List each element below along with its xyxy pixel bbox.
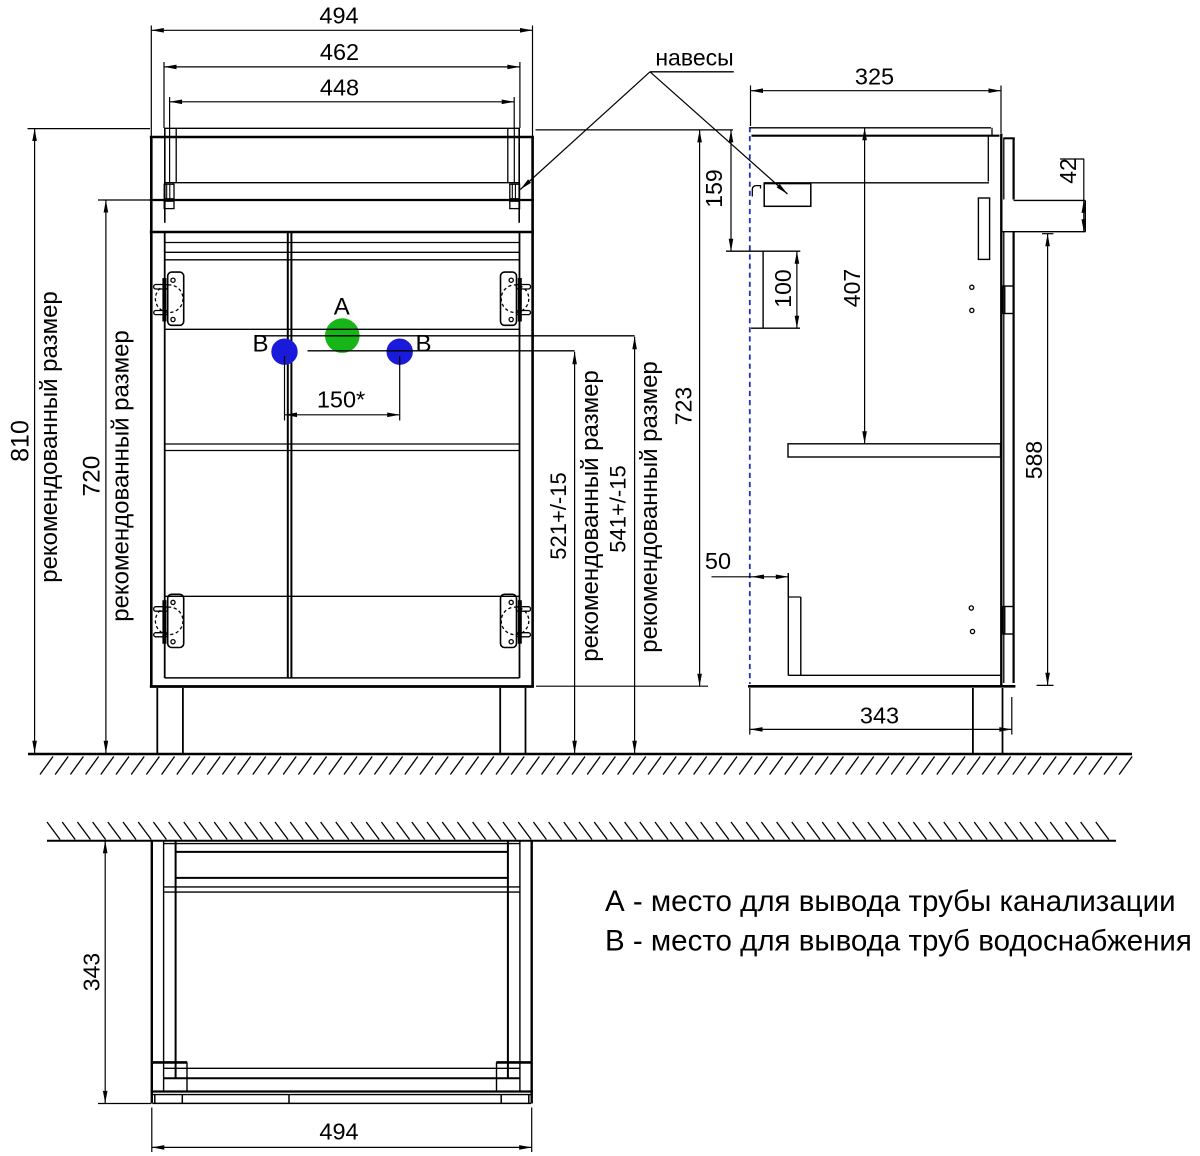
svg-text:494: 494: [319, 3, 358, 29]
svg-text:521+/-15: 521+/-15: [546, 472, 571, 559]
svg-text:810: 810: [7, 420, 35, 462]
svg-text:В - место для вывода труб водо: В - место для вывода труб водоснабжения: [605, 925, 1192, 958]
svg-text:588: 588: [1021, 441, 1047, 479]
svg-text:343: 343: [860, 703, 899, 729]
svg-text:42: 42: [1055, 158, 1081, 184]
svg-text:А: А: [334, 293, 350, 320]
svg-text:720: 720: [78, 456, 105, 497]
svg-text:50: 50: [705, 548, 731, 574]
svg-text:рекомендованный размер: рекомендованный размер: [108, 330, 135, 622]
svg-text:448: 448: [320, 75, 359, 101]
svg-text:А - место для вывода трубы кан: А - место для вывода трубы канализации: [605, 885, 1176, 918]
svg-text:В: В: [252, 331, 268, 358]
svg-text:навесы: навесы: [655, 45, 733, 71]
svg-text:150*: 150*: [317, 386, 365, 412]
svg-text:343: 343: [79, 953, 105, 991]
svg-text:100: 100: [770, 269, 796, 307]
svg-text:494: 494: [319, 1119, 358, 1145]
svg-text:541+/-15: 541+/-15: [606, 465, 631, 552]
svg-text:В: В: [415, 331, 431, 358]
svg-text:407: 407: [839, 269, 865, 307]
svg-text:рекомендованный размер: рекомендованный размер: [577, 370, 604, 662]
svg-text:рекомендованный размер: рекомендованный размер: [636, 361, 663, 653]
svg-text:462: 462: [320, 39, 359, 65]
svg-text:рекомендованный размер: рекомендованный размер: [36, 291, 63, 583]
svg-text:723: 723: [670, 387, 696, 425]
svg-text:159: 159: [701, 169, 727, 207]
svg-text:325: 325: [855, 64, 894, 90]
